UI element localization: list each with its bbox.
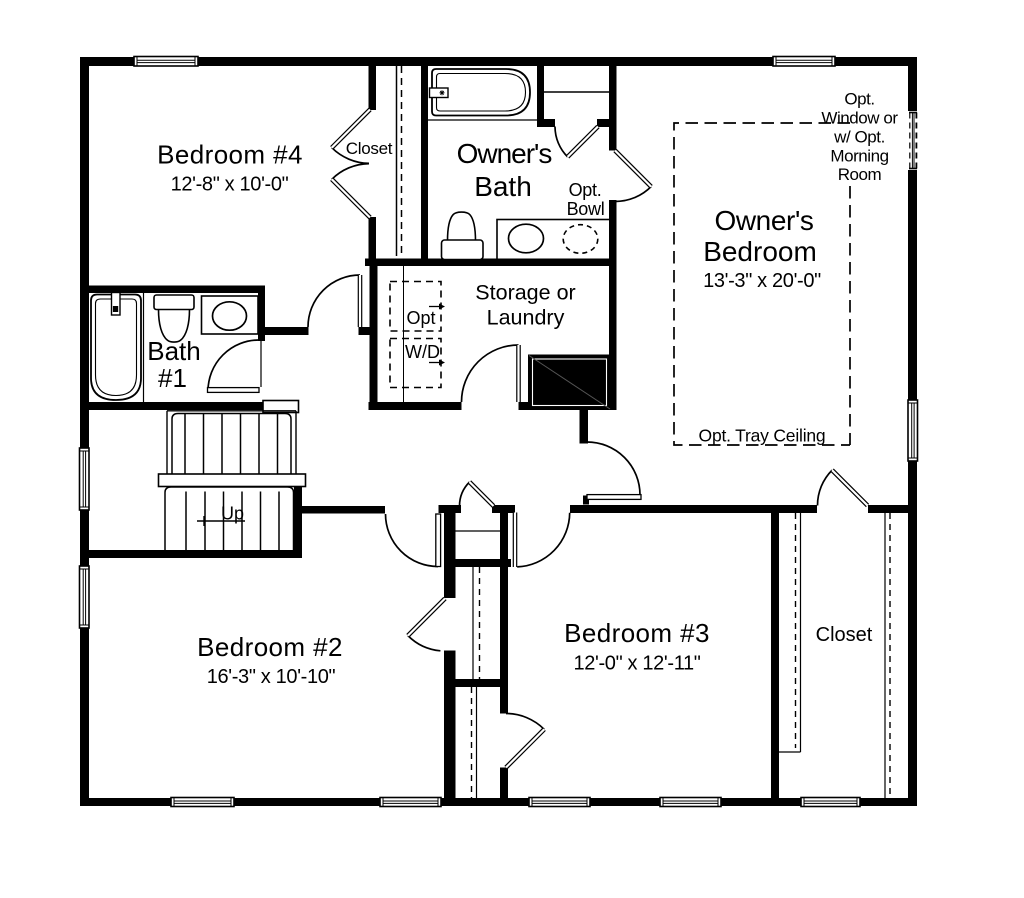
svg-text:Window or: Window or xyxy=(821,109,898,128)
svg-text:Bowl: Bowl xyxy=(567,199,605,219)
svg-text:12'-0" x 12'-11": 12'-0" x 12'-11" xyxy=(573,653,700,675)
svg-text:Opt: Opt xyxy=(406,308,435,328)
svg-text:13'-3" x 20'-0": 13'-3" x 20'-0" xyxy=(703,270,821,292)
svg-text:Storage or: Storage or xyxy=(475,281,575,305)
svg-text:Opt. Tray Ceiling: Opt. Tray Ceiling xyxy=(699,426,826,446)
svg-text:W/D: W/D xyxy=(405,342,440,362)
svg-text:Closet: Closet xyxy=(816,624,873,646)
svg-text:Opt.: Opt. xyxy=(569,180,602,200)
svg-text:16'-3" x 10'-10": 16'-3" x 10'-10" xyxy=(207,666,336,688)
svg-text:Up: Up xyxy=(221,504,244,524)
svg-text:Bedroom #3: Bedroom #3 xyxy=(564,618,710,648)
svg-text:Bath: Bath xyxy=(147,336,201,366)
svg-text:Bedroom #2: Bedroom #2 xyxy=(197,632,343,662)
svg-text:Owner's: Owner's xyxy=(714,205,813,236)
svg-text:w/ Opt.: w/ Opt. xyxy=(833,128,885,147)
svg-text:Morning: Morning xyxy=(830,147,888,166)
svg-text:Laundry: Laundry xyxy=(487,306,565,330)
svg-text:Bedroom #4: Bedroom #4 xyxy=(157,140,303,170)
svg-text:Bedroom: Bedroom xyxy=(703,236,817,267)
svg-text:Opt.: Opt. xyxy=(844,90,874,109)
svg-text:Room: Room xyxy=(838,165,882,184)
svg-text:Bath: Bath xyxy=(474,171,532,202)
svg-text:12'-8" x 10'-0": 12'-8" x 10'-0" xyxy=(171,174,289,196)
svg-text:#1: #1 xyxy=(158,363,187,393)
svg-text:Closet: Closet xyxy=(346,139,393,158)
svg-text:Owner's: Owner's xyxy=(457,138,552,169)
